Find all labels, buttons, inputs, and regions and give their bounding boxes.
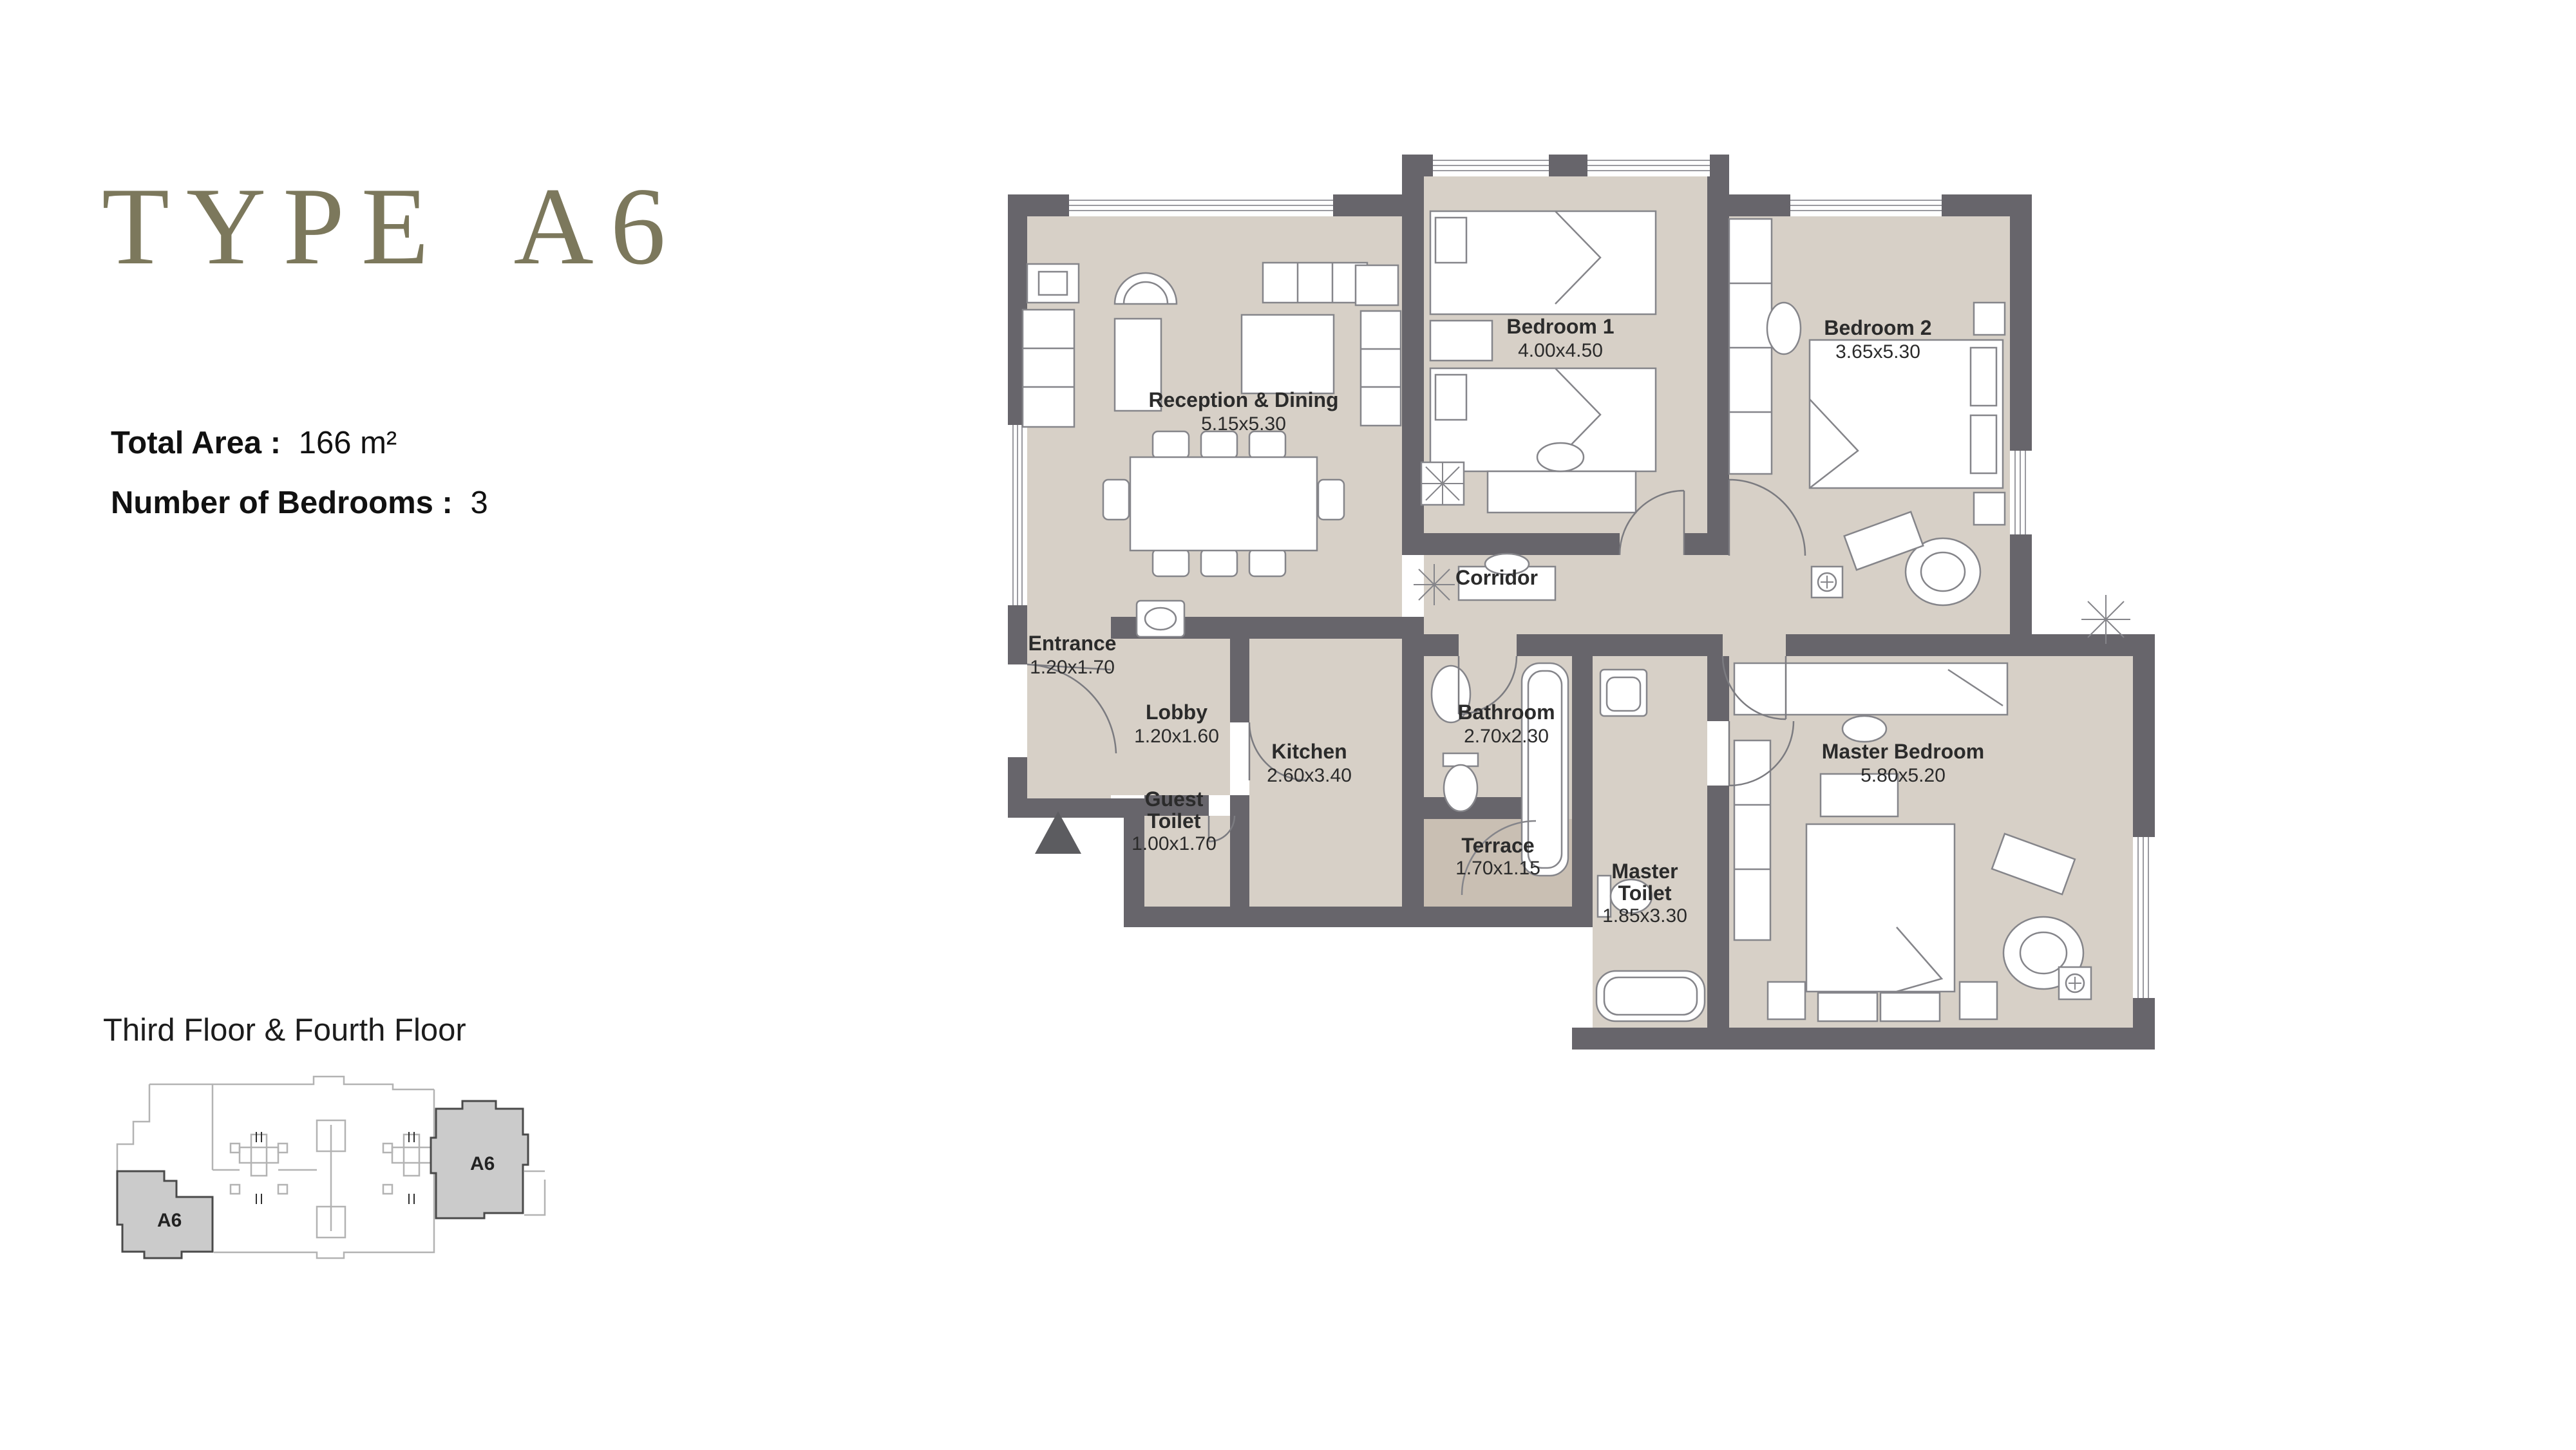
label-master-toilet-2: Toilet [1618, 881, 1672, 905]
key-plan-units: A6 A6 [117, 1101, 528, 1258]
door-opening-entrance [1008, 664, 1027, 757]
floor-plan: Reception & Dining 5.15x5.30 Bedroom 1 4… [1008, 155, 2177, 1056]
dims-master-toilet: 1.85x3.30 [1602, 905, 1687, 927]
label-kitchen: Kitchen [1271, 740, 1347, 763]
key-plan: A6 A6 [104, 1070, 558, 1266]
dims-master-bedroom: 5.80x5.20 [1861, 765, 1946, 786]
total-area-label: Total Area : [111, 426, 281, 460]
dims-kitchen: 2.60x3.40 [1267, 765, 1352, 786]
bedrooms-row: Number of Bedrooms : 3 [111, 487, 488, 519]
dims-bedroom1: 4.00x4.50 [1518, 340, 1603, 361]
dims-reception: 5.15x5.30 [1201, 413, 1286, 435]
dims-lobby: 1.20x1.60 [1134, 726, 1219, 747]
dims-terrace: 1.70x1.15 [1455, 858, 1540, 879]
label-terrace: Terrace [1461, 834, 1534, 857]
dims-bathroom: 2.70x2.30 [1464, 726, 1549, 747]
page-title: TYPE A6 [102, 169, 683, 285]
label-reception: Reception & Dining [1148, 388, 1338, 411]
label-master-bedroom: Master Bedroom [1822, 740, 1985, 763]
dims-entrance: 1.20x1.70 [1030, 657, 1115, 678]
total-area-value: 166 m² [299, 426, 397, 460]
unit-a6-right-label: A6 [470, 1153, 495, 1174]
dims-guest-toilet: 1.00x1.70 [1132, 833, 1217, 854]
label-bedroom2: Bedroom 2 [1824, 316, 1931, 339]
label-lobby: Lobby [1146, 701, 1207, 724]
unit-a6-left-label: A6 [157, 1210, 182, 1231]
total-area-row: Total Area : 166 m² [111, 428, 488, 459]
bedrooms-label: Number of Bedrooms : [111, 485, 453, 520]
label-bathroom: Bathroom [1457, 701, 1555, 724]
label-corridor: Corridor [1455, 566, 1538, 589]
room-fill-master-door [1723, 634, 1786, 656]
bedrooms-value: 3 [471, 485, 488, 520]
room-fill-bed1-door [1620, 533, 1684, 555]
label-guest-toilet-1: Guest [1145, 787, 1204, 811]
dims-bedroom2: 3.65x5.30 [1835, 341, 1920, 362]
page: TYPE A6 Total Area : 166 m² Number of Be… [0, 0, 2576, 1450]
label-master-toilet-1: Master [1611, 860, 1678, 883]
room-fill-bathroom-door [1459, 634, 1517, 656]
label-bedroom1: Bedroom 1 [1506, 315, 1614, 338]
label-guest-toilet-2: Toilet [1148, 809, 1201, 833]
spec-list: Total Area : 166 m² Number of Bedrooms :… [111, 428, 488, 547]
floor-note: Third Floor & Fourth Floor [103, 1012, 466, 1048]
label-entrance: Entrance [1028, 632, 1117, 655]
